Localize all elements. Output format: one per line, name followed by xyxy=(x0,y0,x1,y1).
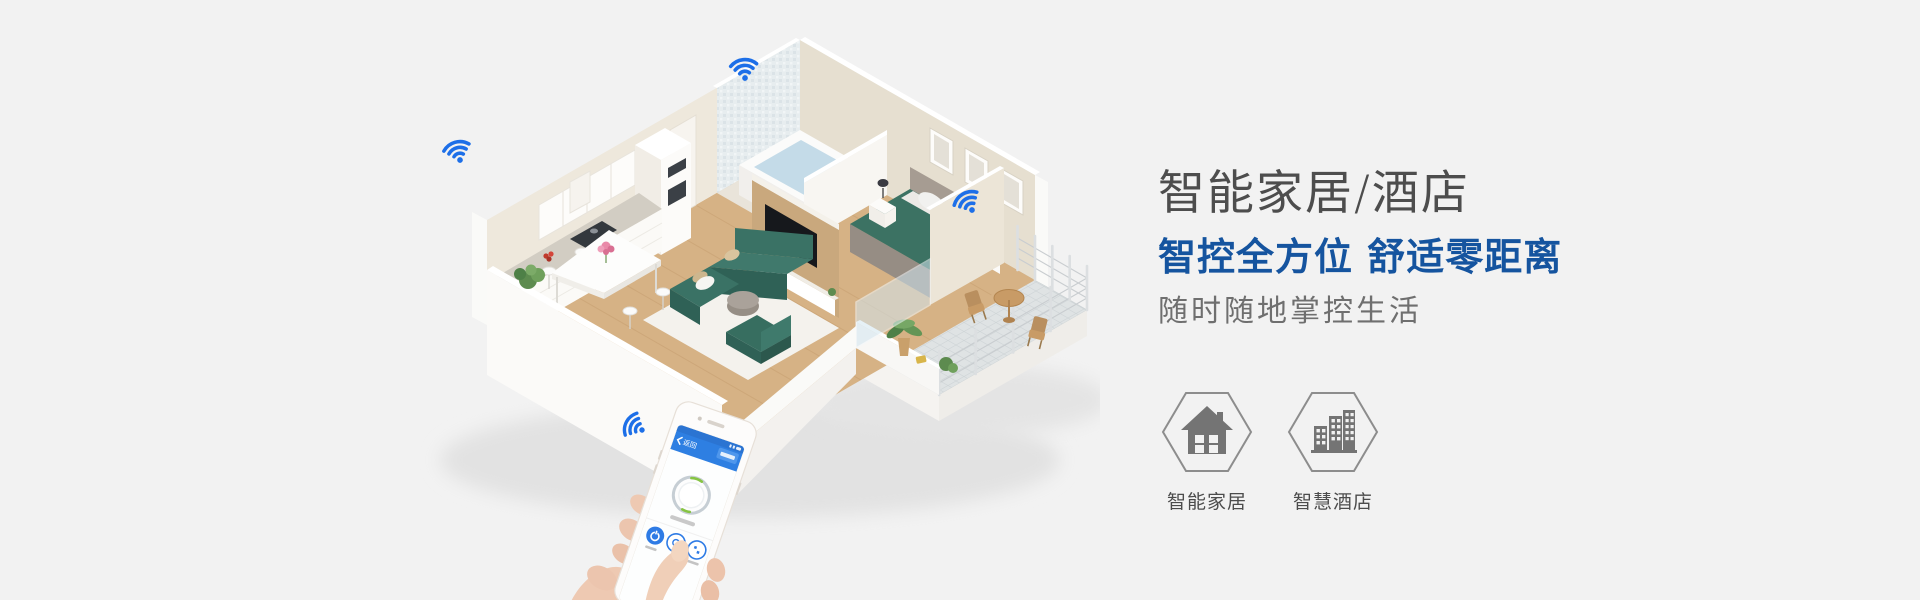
feature-label: 智慧酒店 xyxy=(1293,487,1373,514)
feature-list: 智能家居 xyxy=(1157,390,1383,514)
hero-copy: 智能家居/酒店 智控全方位 舒适零距离 随时随地掌控生活 xyxy=(1158,168,1798,330)
page-title: 智能家居/酒店 xyxy=(1158,168,1798,220)
apartment-illustration: 返回 xyxy=(380,30,1100,600)
hexagon-badge xyxy=(1287,390,1379,474)
feature-smart-hotel[interactable]: 智慧酒店 xyxy=(1283,390,1383,514)
feature-smart-home[interactable]: 智能家居 xyxy=(1157,390,1257,514)
feature-label: 智能家居 xyxy=(1167,487,1247,514)
wifi-icon xyxy=(442,139,473,167)
house-icon xyxy=(1181,406,1233,454)
hero-headline: 智控全方位 舒适零距离 xyxy=(1158,236,1798,280)
buildings-icon xyxy=(1311,410,1357,453)
hexagon-badge xyxy=(1161,390,1253,474)
hero-banner: 返回 xyxy=(0,0,1920,600)
hero-subtitle: 随时随地掌控生活 xyxy=(1158,294,1798,330)
